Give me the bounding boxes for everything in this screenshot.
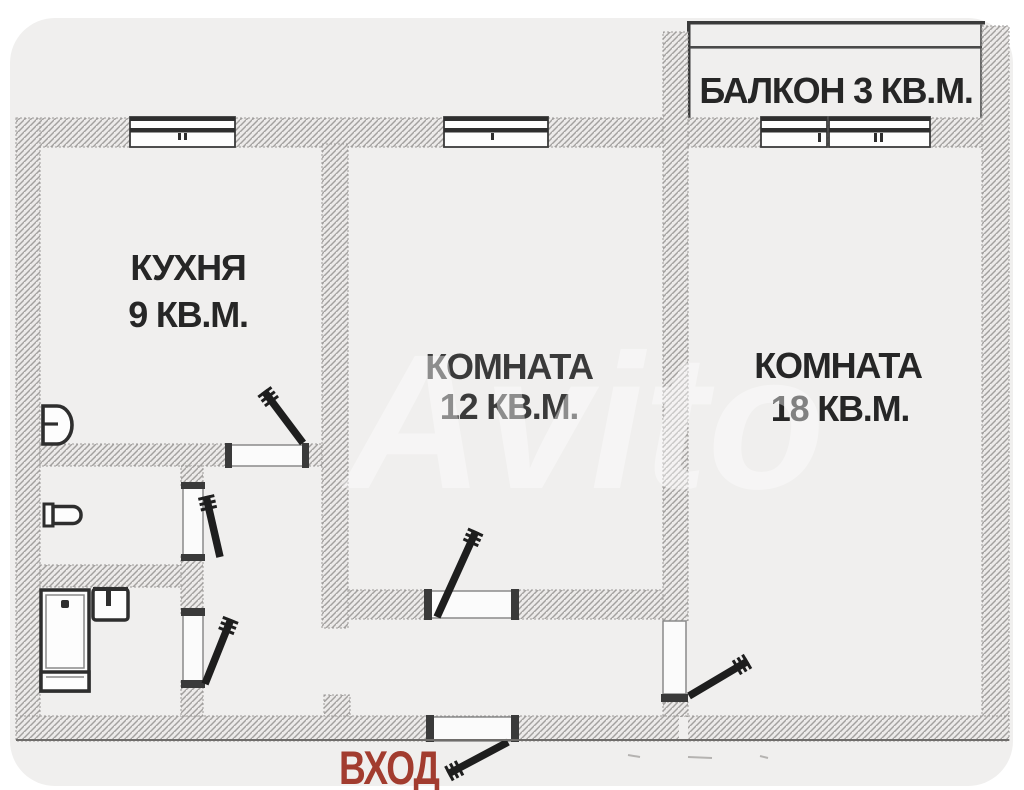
svg-text:БАЛКОН 3 КВ.М.: БАЛКОН 3 КВ.М. [699,70,972,111]
svg-text:Avito: Avito [341,314,825,529]
svg-text:9 КВ.М.: 9 КВ.М. [128,294,248,335]
svg-text:ВХОД: ВХОД [339,741,440,790]
svg-text:КУХНЯ: КУХНЯ [130,247,245,288]
